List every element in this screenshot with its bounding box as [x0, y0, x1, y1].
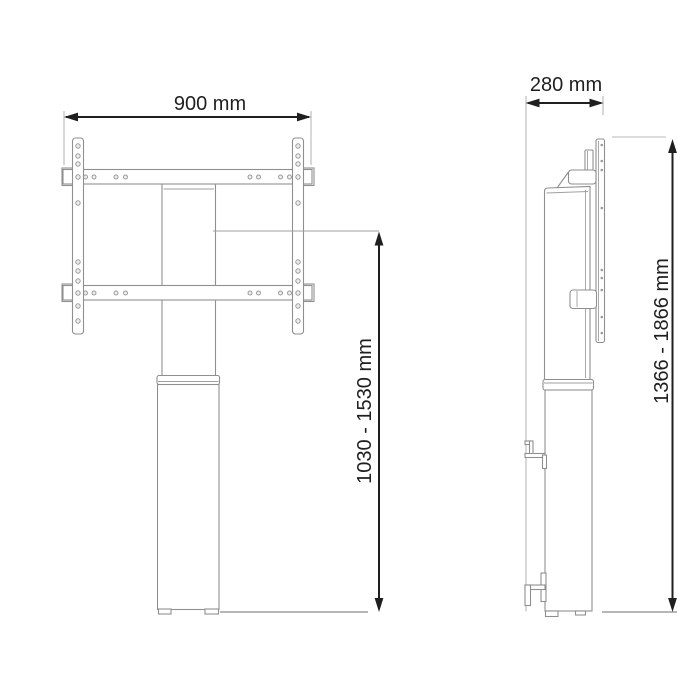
front-width-dimension: 900 mm — [64, 93, 311, 165]
arrow-up — [375, 232, 384, 246]
side-front-foot — [546, 611, 559, 617]
front-bottom-bar — [62, 284, 314, 302]
side-upper-column — [545, 187, 591, 381]
side-upper-wall-clamp — [525, 441, 547, 469]
arrow-down — [375, 598, 384, 612]
arrow-up — [668, 139, 677, 153]
front-column-collar — [157, 376, 220, 385]
arrow-down — [668, 598, 677, 612]
side-top-bracket — [557, 170, 596, 188]
side-height-label: 1366 - 1866 mm — [651, 258, 673, 404]
side-top-bar-end — [585, 150, 593, 173]
arrow-right — [297, 113, 311, 122]
front-right-foot — [205, 609, 219, 614]
front-top-bar — [62, 168, 314, 186]
front-right-rail — [293, 138, 304, 334]
front-lower-column — [158, 385, 220, 615]
front-left-foot — [159, 609, 172, 614]
side-depth-dimension: 280 mm — [526, 74, 604, 115]
arrow-left — [64, 113, 78, 122]
side-lower-wall-clamp — [525, 573, 546, 606]
side-depth-label: 280 mm — [530, 74, 602, 96]
side-rail-plate — [596, 139, 605, 343]
arrow-left — [526, 99, 540, 108]
side-lower-column — [545, 390, 592, 617]
front-height-label: 1030 - 1530 mm — [354, 338, 376, 484]
technical-drawing: 900 mm 1030 - 1530 mm — [0, 0, 700, 700]
front-width-label: 900 mm — [174, 93, 246, 115]
front-upper-column — [162, 183, 216, 377]
front-view — [62, 138, 368, 614]
side-rear-foot — [576, 611, 586, 615]
side-height-dimension: 1366 - 1866 mm — [612, 137, 677, 612]
side-column-collar — [543, 380, 594, 391]
arrow-right — [590, 99, 604, 108]
front-left-rail — [73, 138, 84, 334]
drawing-canvas: 900 mm 1030 - 1530 mm — [0, 0, 700, 700]
side-bottom-bracket — [570, 290, 597, 309]
